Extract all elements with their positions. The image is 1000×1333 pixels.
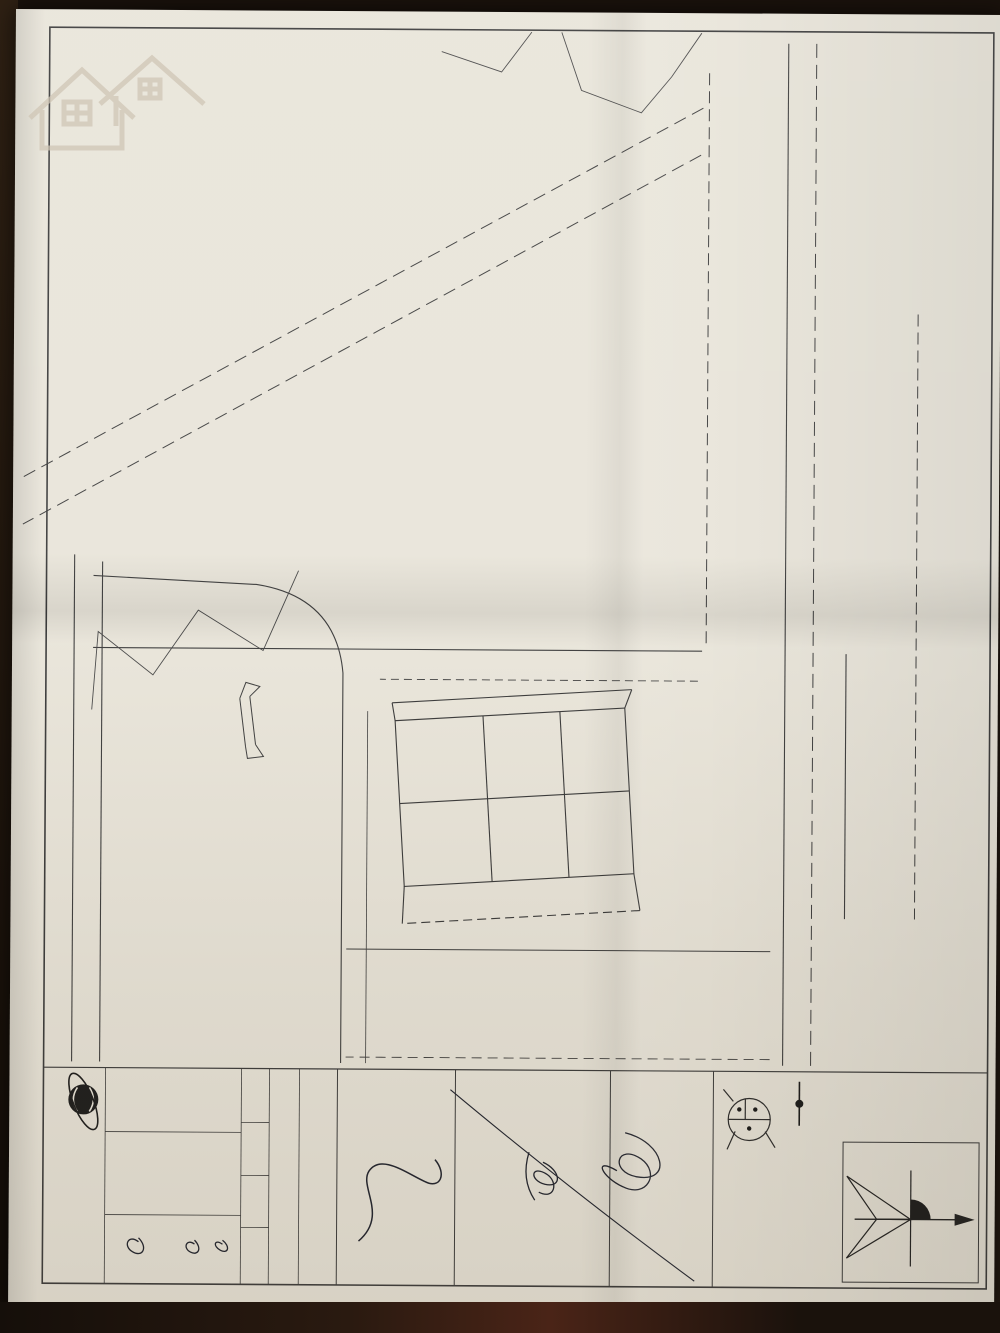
company-logo (8, 9, 1000, 1309)
paper-sheet (8, 9, 1000, 1309)
dc-globe-icon (63, 1070, 104, 1133)
table-surface (0, 1302, 1000, 1333)
landscape-document (8, 9, 1000, 1309)
photo-of-planning-map (0, 0, 1000, 1333)
